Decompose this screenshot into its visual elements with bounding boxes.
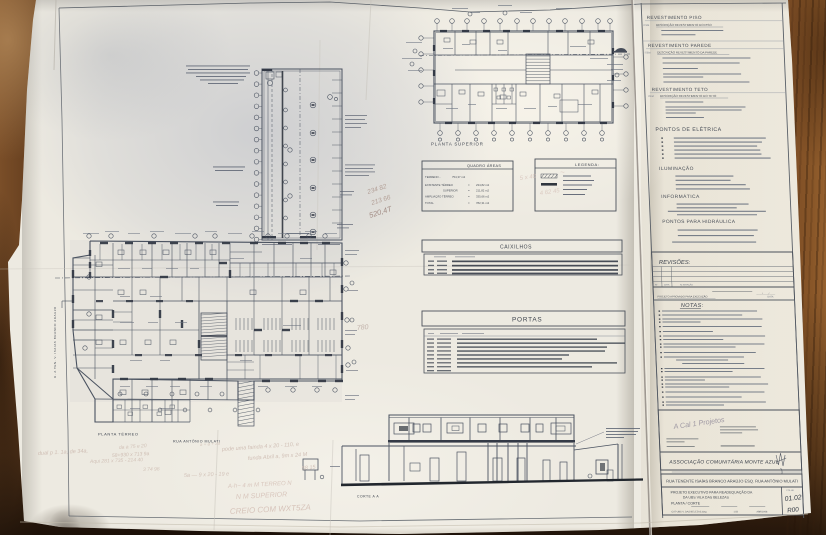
svg-text:DESCRIÇÃO REVESTIMENTO DO PISO: DESCRIÇÃO REVESTIMENTO DO PISO <box>656 22 712 27</box>
svg-text:R00: R00 <box>787 506 800 514</box>
svg-text:QUADRO ÁREAS: QUADRO ÁREAS <box>467 164 501 168</box>
svg-text:N M SUPERIOR: N M SUPERIOR <box>236 491 288 501</box>
svg-text:REVESTIMENTO PAREDE: REVESTIMENTO PAREDE <box>648 43 712 48</box>
svg-text:PONTOS PARA HIDRÁULICA: PONTOS PARA HIDRÁULICA <box>662 218 736 225</box>
svg-text:3 74 96: 3 74 96 <box>143 466 160 473</box>
svg-text:A-h~ 4 m M TERREO N: A-h~ 4 m M TERREO N <box>227 481 293 490</box>
svg-text:335,66 m2: 335,66 m2 <box>476 195 490 199</box>
svg-text:DA UBS VILA DAS BELEZAS: DA UBS VILA DAS BELEZAS <box>683 496 730 500</box>
svg-text:211,82 m2: 211,82 m2 <box>476 189 489 193</box>
svg-text:SUPERIOR: SUPERIOR <box>443 189 458 193</box>
svg-text:REVESTIMENTO TETO: REVESTIMENTO TETO <box>652 87 709 92</box>
svg-text:234,82 m2: 234,82 m2 <box>476 183 490 187</box>
svg-text:=: = <box>468 201 470 205</box>
svg-text:Nº: Nº <box>655 283 658 286</box>
svg-text:DESCRIÇÃO REVESTIMENTO DA PARE: DESCRIÇÃO REVESTIMENTO DA PAREDE <box>657 50 717 55</box>
svg-text:AMPLIAÇÃO TÉRREO: AMPLIAÇÃO TÉRREO <box>425 194 455 199</box>
svg-text:ASSOCIAÇÃO COMUNITÁRIA MONTE A: ASSOCIAÇÃO COMUNITÁRIA MONTE AZUL <box>668 459 779 466</box>
svg-text:FOLHA: FOLHA <box>786 489 794 492</box>
svg-text:PLANTA / CORTE: PLANTA / CORTE <box>671 502 701 506</box>
svg-text:1:50: 1:50 <box>733 511 738 514</box>
svg-text:PLANTA SUPERIOR: PLANTA SUPERIOR <box>431 142 484 147</box>
svg-text:ABR/2008: ABR/2008 <box>756 511 768 514</box>
svg-text:R. A TEN. V. ISAIAS BRANCO ARA: R. A TEN. V. ISAIAS BRANCO ARAUJO <box>53 306 57 378</box>
svg-text:PONTOS DE ELÉTRICA: PONTOS DE ELÉTRICA <box>655 126 722 133</box>
svg-text:4 62 45: 4 62 45 <box>539 188 560 197</box>
svg-text:=: = <box>468 183 470 187</box>
svg-text:=: = <box>468 189 470 193</box>
svg-text:=: = <box>468 195 470 199</box>
svg-text:DATA: DATA <box>664 283 670 286</box>
svg-text:pode uma fainda 4 x 20 - 110,: pode uma fainda 4 x 20 - 110, e <box>221 442 299 453</box>
svg-text:EXISTENTE TÉRREO: EXISTENTE TÉRREO <box>425 182 454 187</box>
svg-text:PORTAS: PORTAS <box>512 317 543 324</box>
svg-text:01.02: 01.02 <box>784 494 802 503</box>
svg-text:TERRENO -: TERRENO - <box>425 175 440 179</box>
svg-text:Aqui 281 x 735 - 214 40: Aqui 281 x 735 - 214 40 <box>89 457 143 465</box>
svg-text:754,37 m2: 754,37 m2 <box>452 175 466 179</box>
svg-text:RUA TENENTE ISAÍAS BRANCO ARAÚ: RUA TENENTE ISAÍAS BRANCO ARAÚJO ESQ. RU… <box>666 479 798 484</box>
svg-text:CORTE A A: CORTE A A <box>357 495 379 499</box>
svg-text:CAT-UBS V. DAS BELEZAS.dwg: CAT-UBS V. DAS BELEZAS.dwg <box>671 511 707 514</box>
svg-text:780: 780 <box>357 324 369 332</box>
svg-text:TOTAL: TOTAL <box>425 201 434 205</box>
svg-text:LEGENDA:: LEGENDA: <box>575 162 599 167</box>
svg-text:ALTERAÇÃO: ALTERAÇÃO <box>680 283 694 286</box>
svg-text:REVISÕES:: REVISÕES: <box>659 259 691 266</box>
svg-text:dual p 1. 1a, de 34a,: dual p 1. 1a, de 34a, <box>38 448 88 457</box>
svg-text:PROJETO APROVADO PARA EXECUÇÃO: PROJETO APROVADO PARA EXECUÇÃO <box>657 294 707 299</box>
svg-text:5 x 40: 5 x 40 <box>519 174 537 182</box>
svg-text:5a — 9 x 20 - 19 e: 5a — 9 x 20 - 19 e <box>184 471 229 479</box>
svg-text:234 82: 234 82 <box>366 183 388 196</box>
svg-text:PROJETO EXECUTIVO PARA READEQU: PROJETO EXECUTIVO PARA READEQUAÇÃO DA <box>671 490 754 495</box>
svg-text:A Cal 1 Projetos: A Cal 1 Projetos <box>672 415 726 431</box>
svg-text:INFORMÁTICA: INFORMÁTICA <box>661 193 700 200</box>
svg-text:PLANTA TÉRREO: PLANTA TÉRREO <box>98 432 139 437</box>
svg-text:782,31 m2: 782,31 m2 <box>476 201 490 205</box>
svg-text:ITEM: ITEM <box>645 52 651 55</box>
svg-text:ITEM: ITEM <box>648 95 654 98</box>
svg-text:DESCRIÇÃO REVESTIMENTO DO TETO: DESCRIÇÃO REVESTIMENTO DO TETO <box>660 93 717 98</box>
svg-text:REVESTIMENTO PISO: REVESTIMENTO PISO <box>647 15 702 20</box>
svg-text:CREIO COM WXT5ZA: CREIO COM WXT5ZA <box>230 503 311 516</box>
svg-text:funda Abril a, 9m x 24 M: funda Abril a, 9m x 24 M <box>248 452 308 462</box>
svg-text:58 15: 58 15 <box>302 464 317 472</box>
svg-text:DATA: DATA <box>767 296 774 299</box>
svg-text:ILUMINAÇÃO: ILUMINAÇÃO <box>659 165 694 172</box>
svg-text:da a 75 e 20: da a 75 e 20 <box>119 443 147 451</box>
svg-text:CAIXILHOS: CAIXILHOS <box>500 245 532 251</box>
svg-text:~: ~ <box>560 168 565 177</box>
svg-text:ITEM: ITEM <box>644 24 650 27</box>
